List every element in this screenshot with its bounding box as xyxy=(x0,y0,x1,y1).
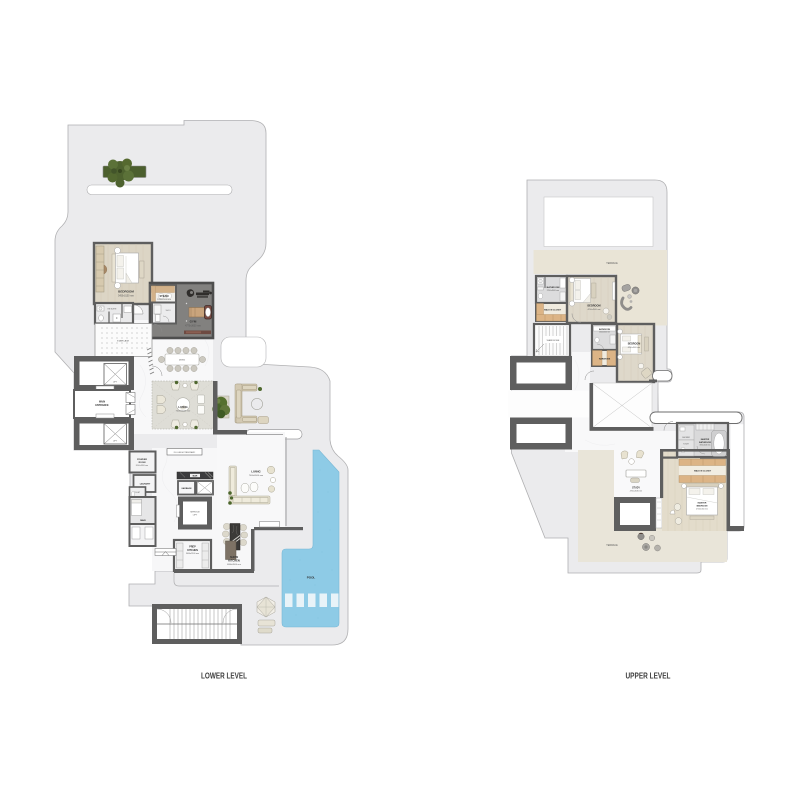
svg-text:2250x4500 mm: 2250x4500 mm xyxy=(599,332,611,334)
svg-text:ENTRANCE: ENTRANCE xyxy=(95,404,109,407)
svg-text:LIFT: LIFT xyxy=(193,515,198,517)
svg-text:BAR: BAR xyxy=(193,475,198,478)
svg-text:4750x5150 mm: 4750x5150 mm xyxy=(696,508,708,510)
svg-text:SHOW: SHOW xyxy=(230,555,239,559)
svg-text:ROOM: ROOM xyxy=(139,462,146,464)
svg-text:2250x4500 mm: 2250x4500 mm xyxy=(547,290,560,292)
svg-text:4750x4530 mm: 4750x4530 mm xyxy=(630,491,643,493)
svg-text:DINING: DINING xyxy=(179,359,186,361)
svg-text:7000x5500 mm: 7000x5500 mm xyxy=(249,475,264,477)
svg-text:LOWER LEVEL: LOWER LEVEL xyxy=(201,671,247,681)
svg-text:SHOWER: SHOWER xyxy=(682,437,690,439)
svg-text:7000x5565 mm: 7000x5565 mm xyxy=(176,411,191,413)
svg-text:KITCHEN: KITCHEN xyxy=(187,549,198,552)
svg-text:BATHROOM: BATHROOM xyxy=(547,286,560,289)
svg-text:Sh.13: Sh.13 xyxy=(166,310,171,312)
svg-text:LIVING: LIVING xyxy=(178,405,187,409)
svg-text:2050x3200 mm: 2050x3200 mm xyxy=(136,465,149,467)
svg-text:FULL HEIGHT PANORAMIC: FULL HEIGHT PANORAMIC xyxy=(174,451,196,454)
svg-text:GYM: GYM xyxy=(190,320,197,324)
svg-text:BEDROOM: BEDROOM xyxy=(587,305,600,308)
svg-text:BEDROOM: BEDROOM xyxy=(118,290,134,294)
svg-text:TERRACE: TERRACE xyxy=(606,262,618,265)
svg-text:TERRACE: TERRACE xyxy=(606,544,618,547)
svg-text:BEDROOM: BEDROOM xyxy=(628,343,640,346)
svg-text:4250x4500 mm: 4250x4500 mm xyxy=(628,347,641,349)
svg-text:BATHROOM: BATHROOM xyxy=(699,441,711,444)
svg-text:5450x5150 mm: 5450x5150 mm xyxy=(118,296,134,298)
svg-text:POOL: POOL xyxy=(307,576,316,580)
svg-text:3750x2530 mm: 3750x2530 mm xyxy=(700,445,712,447)
svg-text:4770x3630 mm: 4770x3630 mm xyxy=(185,326,201,328)
svg-text:SERVICE: SERVICE xyxy=(190,512,200,514)
svg-text:4250x4500 mm: 4250x4500 mm xyxy=(587,309,600,311)
svg-text:BEDROOM: BEDROOM xyxy=(697,505,708,507)
svg-text:BATHROOM: BATHROOM xyxy=(599,328,610,331)
svg-text:STUDY: STUDY xyxy=(632,488,640,490)
svg-text:2350x2500 mm: 2350x2500 mm xyxy=(157,299,171,301)
svg-text:MASTER: MASTER xyxy=(698,502,707,505)
svg-text:6800x3900 mm: 6800x3900 mm xyxy=(227,564,241,566)
svg-text:WARDROBE: WARDROBE xyxy=(547,339,560,342)
svg-text:KITCHEN: KITCHEN xyxy=(228,559,240,563)
svg-text:LIVING: LIVING xyxy=(251,470,260,474)
svg-text:WALK IN CLOSET: WALK IN CLOSET xyxy=(694,470,712,473)
svg-text:POWDER: POWDER xyxy=(137,459,147,461)
svg-text:MASTER: MASTER xyxy=(701,438,710,441)
svg-text:MAID: MAID xyxy=(140,519,146,522)
svg-text:3400x2900 mm: 3400x2900 mm xyxy=(186,553,199,555)
svg-text:EN SUITE: EN SUITE xyxy=(108,309,117,311)
svg-text:LAUNDRY: LAUNDRY xyxy=(140,483,151,486)
svg-text:WARDROBE: WARDROBE xyxy=(599,357,611,360)
svg-text:STEAM: STEAM xyxy=(159,294,168,298)
svg-text:UPPER LEVEL: UPPER LEVEL xyxy=(626,671,671,681)
svg-text:STAIRCASE: STAIRCASE xyxy=(117,340,130,343)
svg-text:TOILET: TOILET xyxy=(683,444,689,446)
svg-text:GARBAGE: GARBAGE xyxy=(181,487,192,490)
svg-text:WALK IN CLOSET: WALK IN CLOSET xyxy=(544,309,562,312)
